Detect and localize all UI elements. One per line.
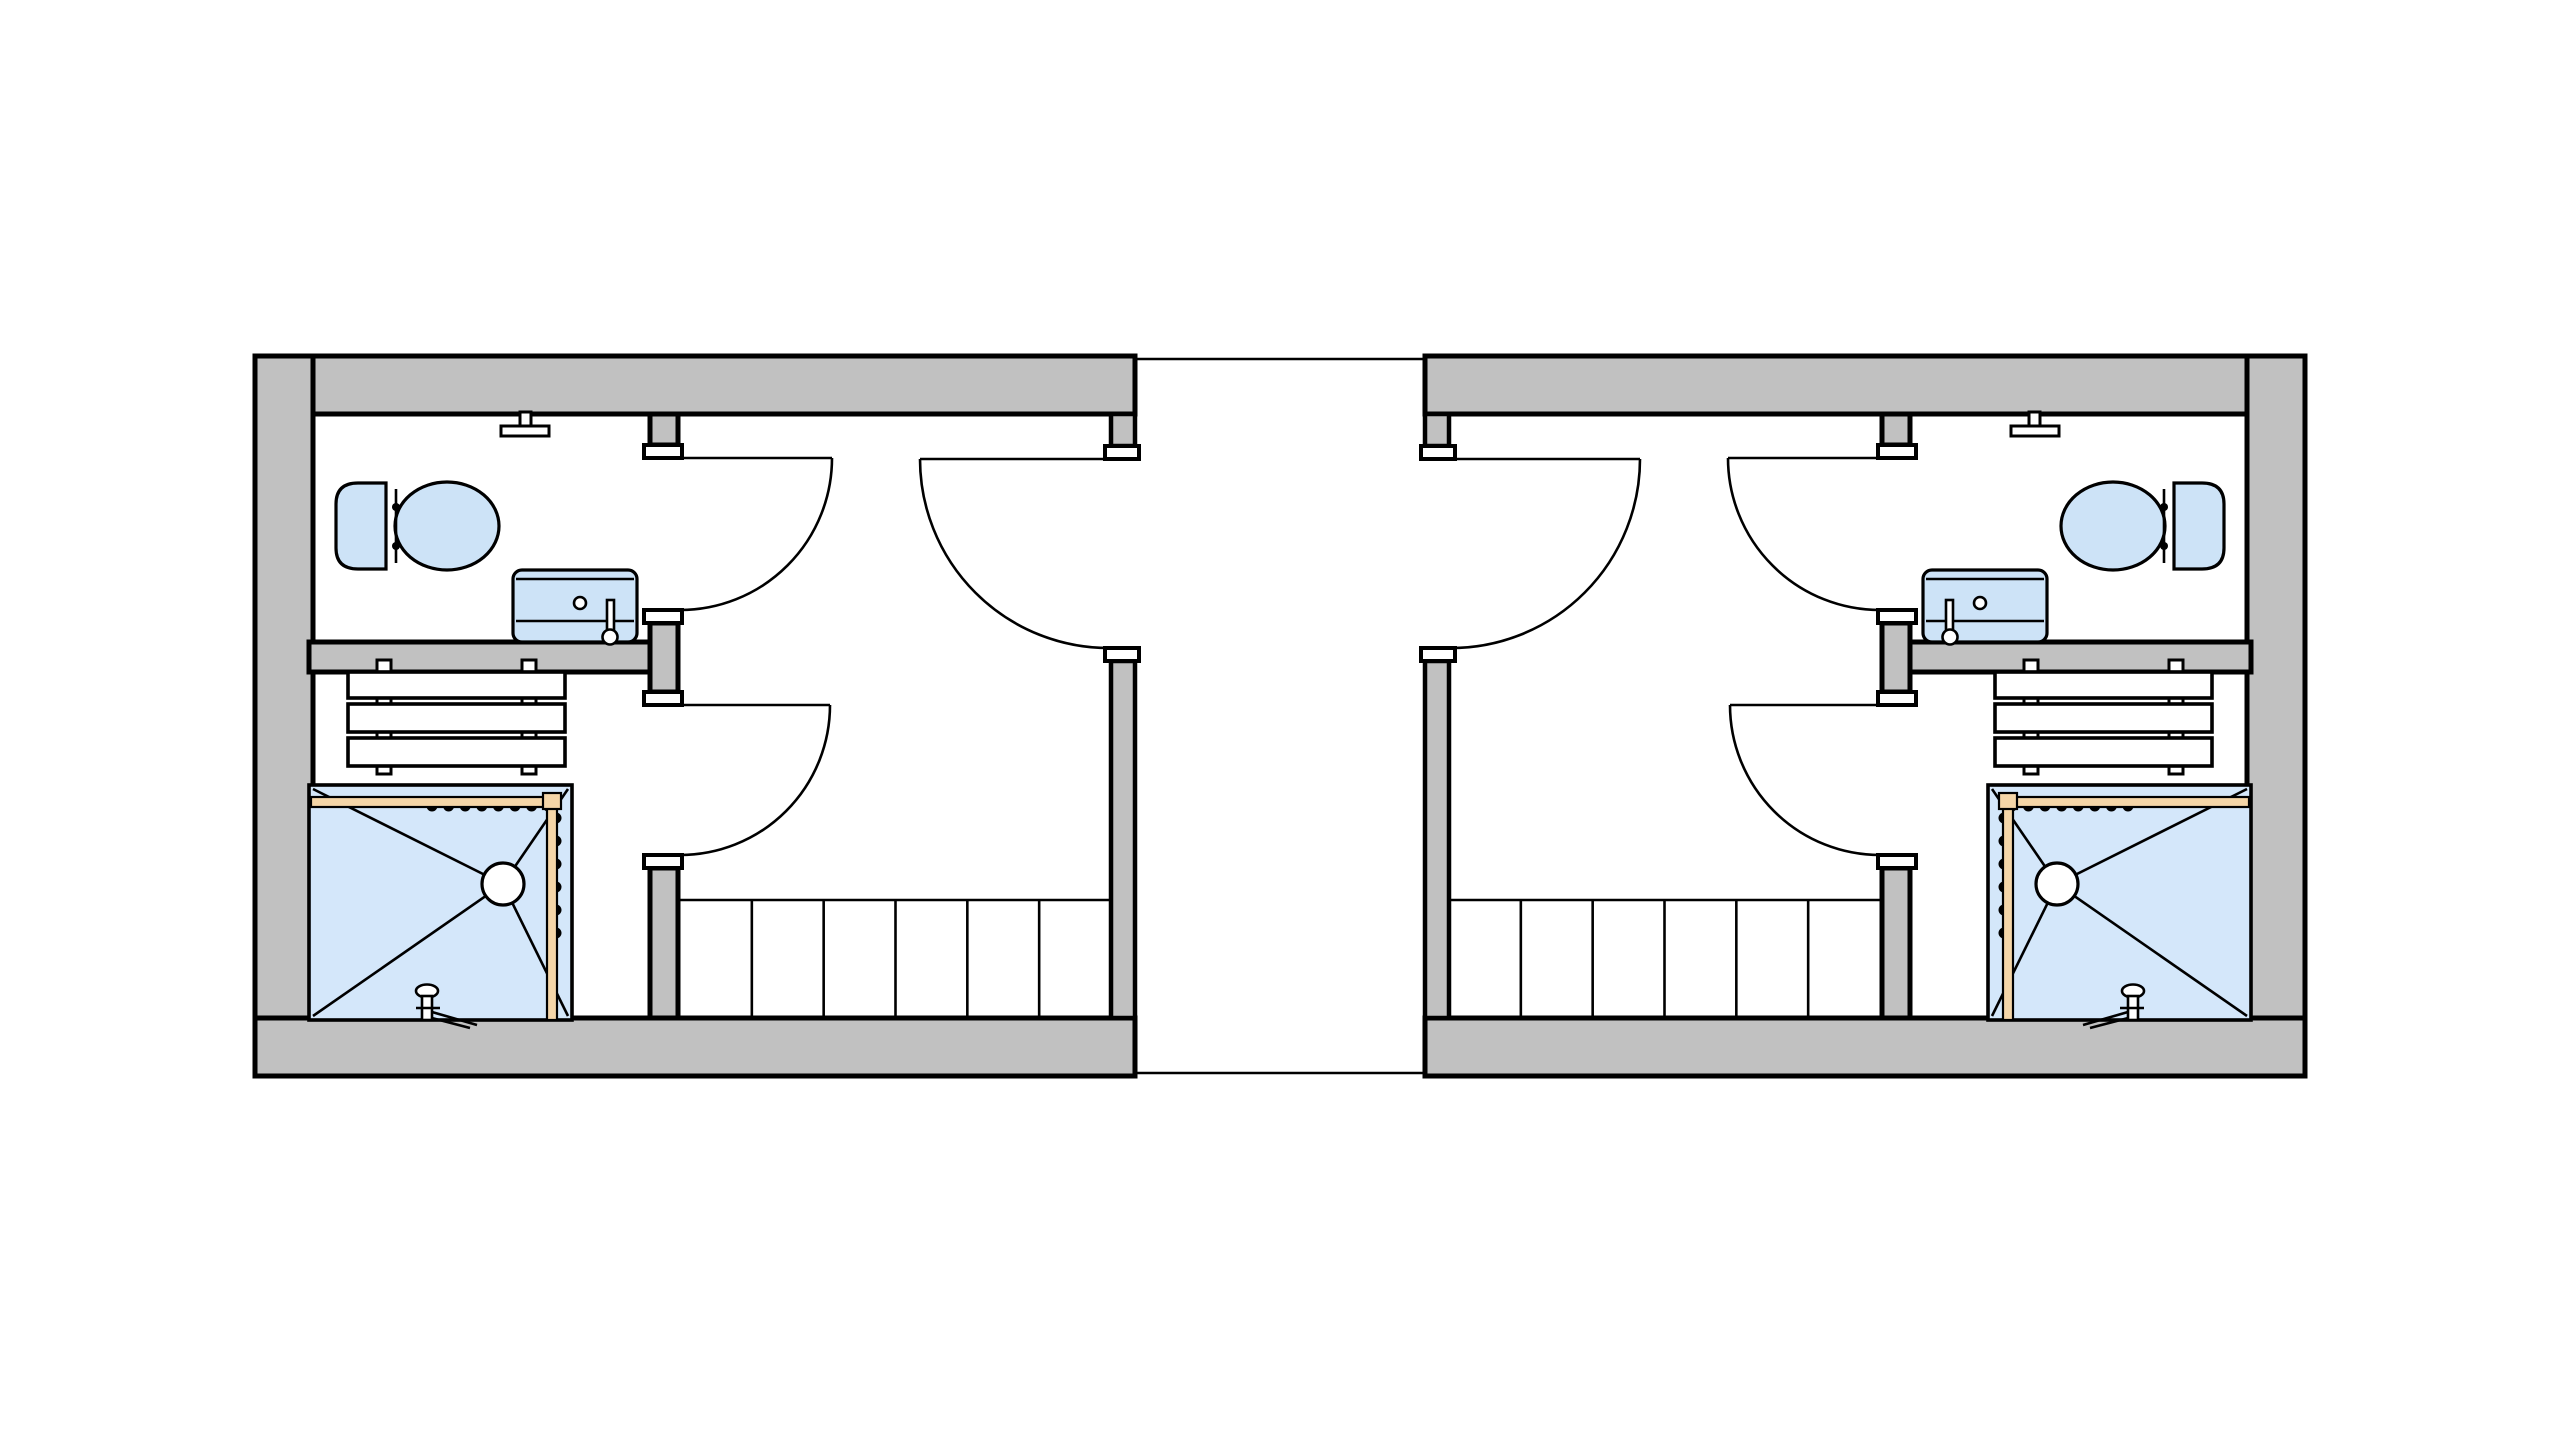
floor-plan-page bbox=[0, 0, 2560, 1437]
floor-plan-canvas bbox=[0, 0, 2560, 1437]
